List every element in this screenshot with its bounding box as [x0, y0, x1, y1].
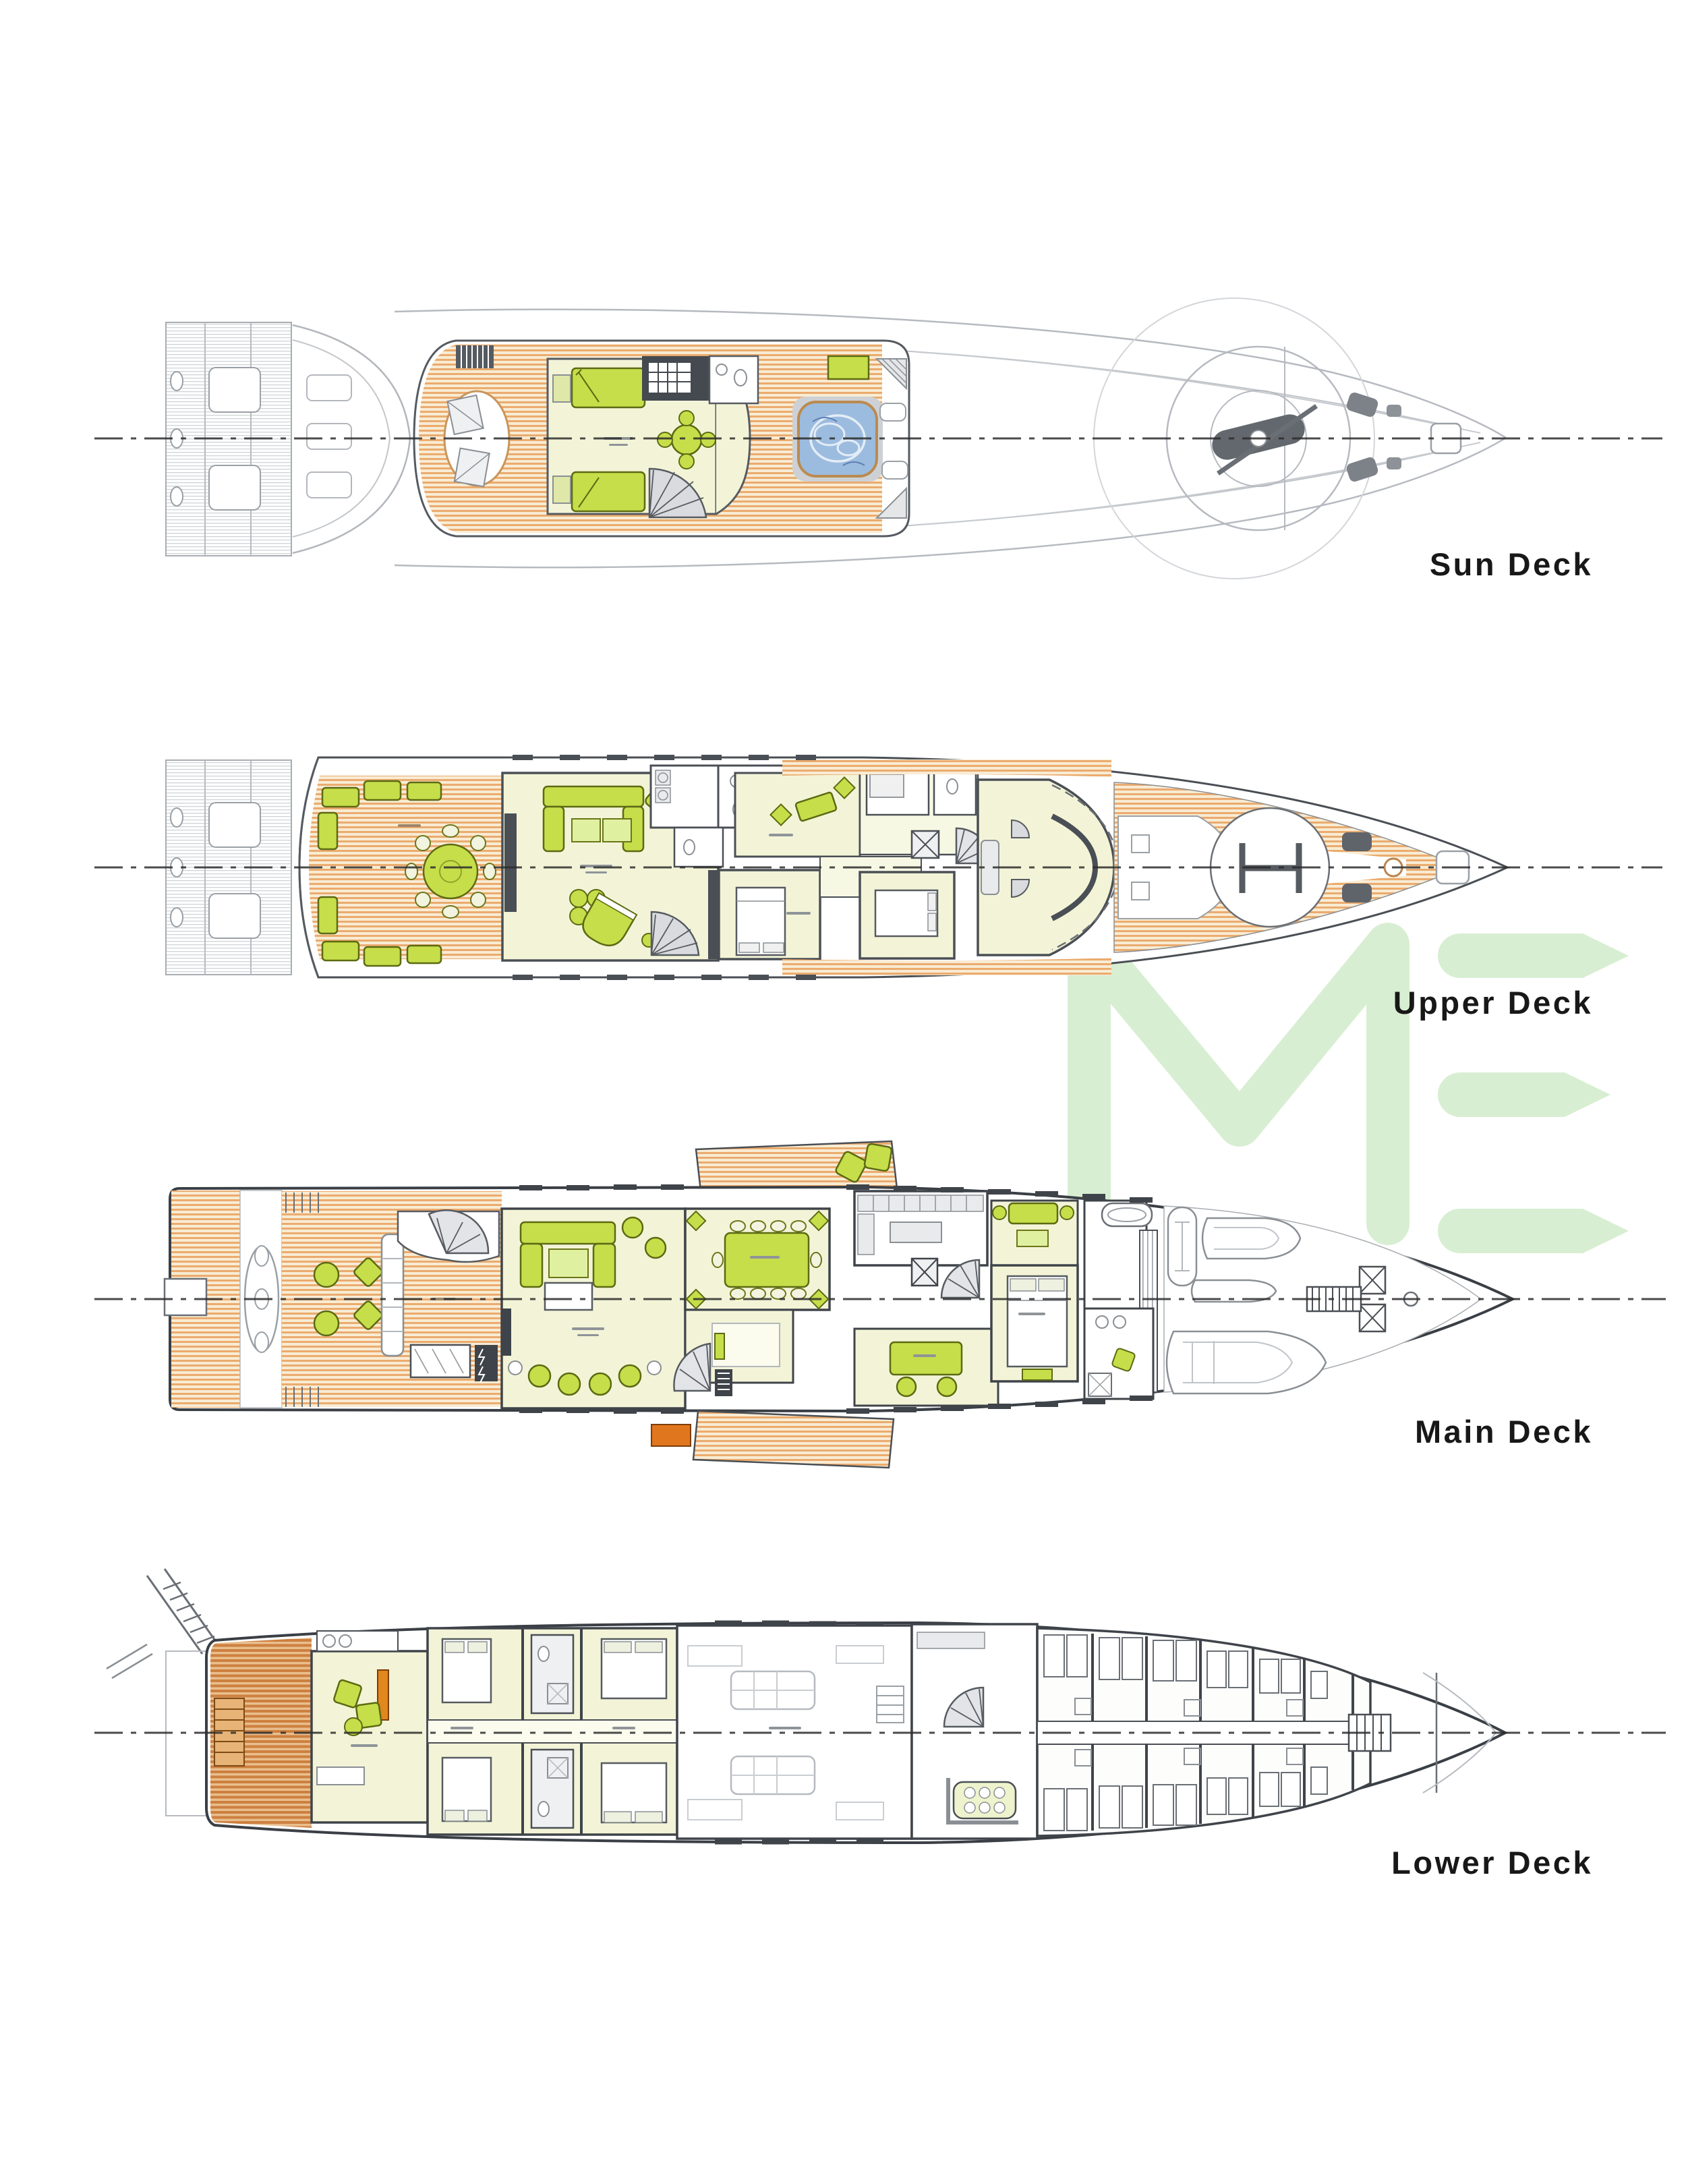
svg-text:Sun Deck: Sun Deck	[1430, 546, 1593, 582]
svg-text:Upper Deck: Upper Deck	[1393, 985, 1593, 1021]
svg-text:Lower Deck: Lower Deck	[1391, 1845, 1593, 1880]
svg-text:Main Deck: Main Deck	[1415, 1414, 1593, 1449]
